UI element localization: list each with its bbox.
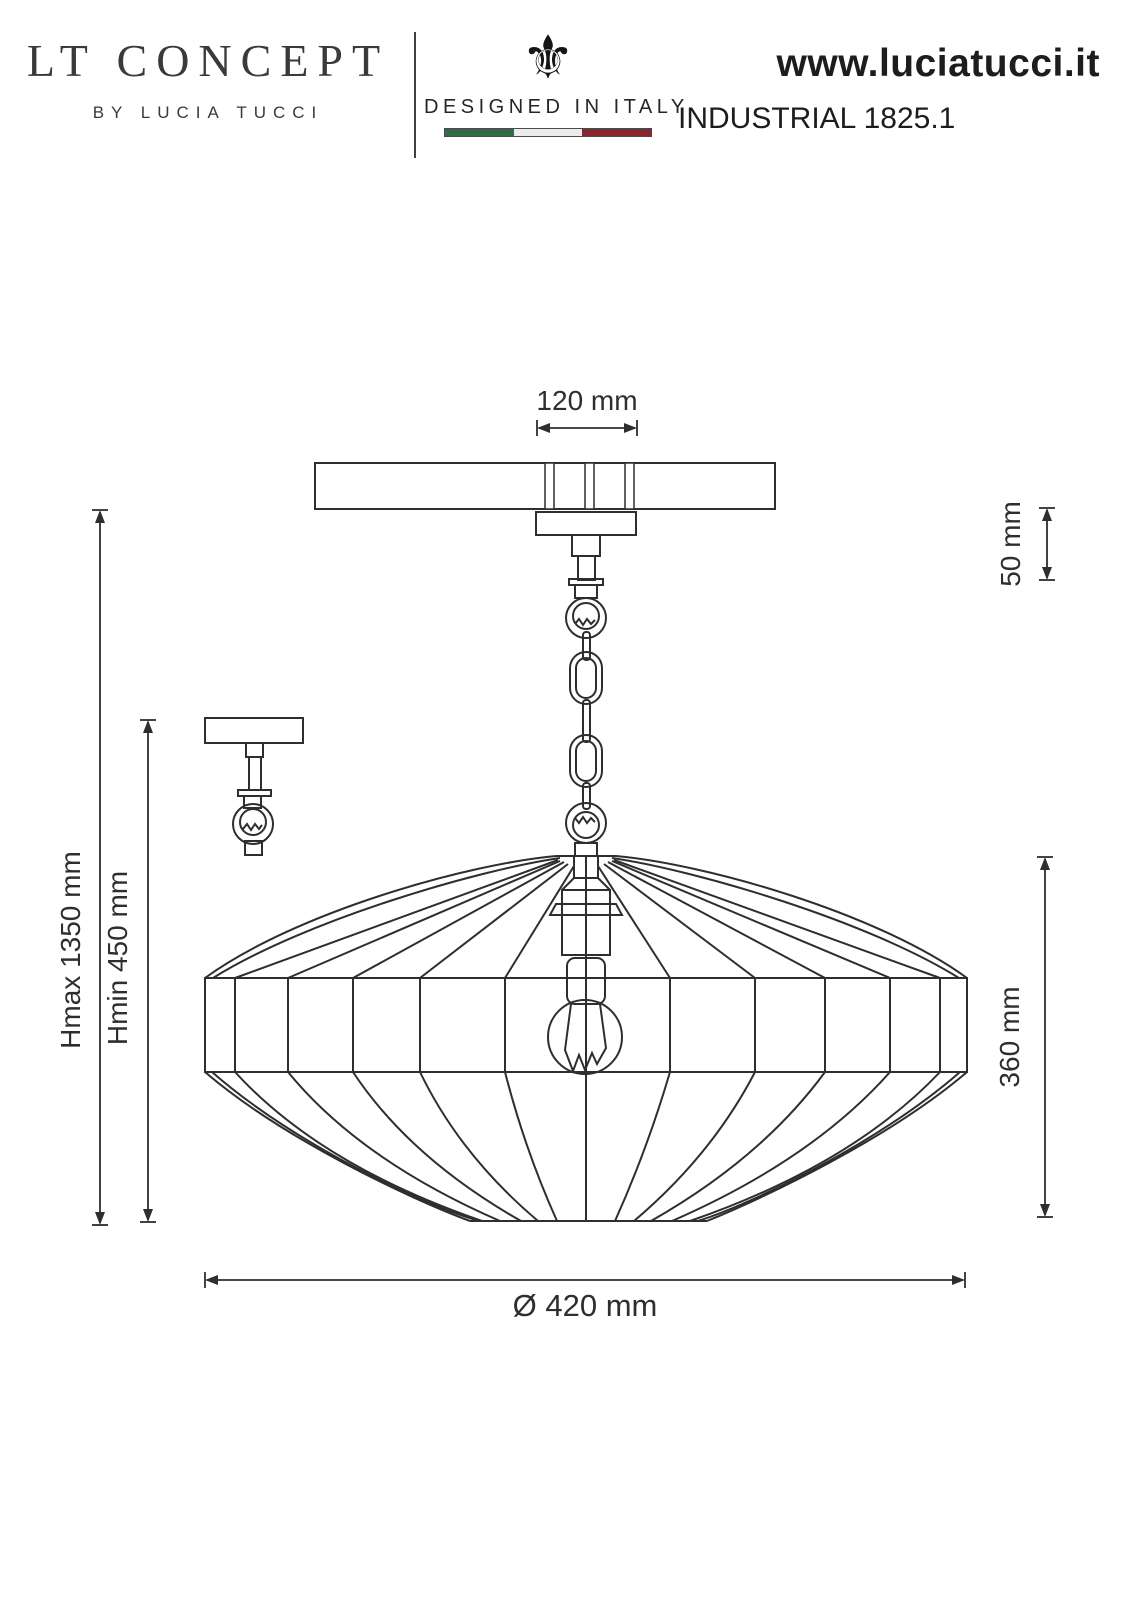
dim-label-360mm: 360 mm	[994, 986, 1025, 1087]
dim-label-diameter: Ø 420 mm	[513, 1288, 658, 1323]
ceiling-slot	[625, 463, 634, 509]
dim-shade-height: 360 mm	[994, 857, 1053, 1217]
technical-drawing: 120 mm 50 mm Hmax 1350 mm	[0, 0, 1132, 1600]
lamp-shade	[205, 856, 967, 1221]
ceiling-mount-detail	[205, 718, 303, 855]
canopy	[536, 512, 636, 535]
ceiling-section	[315, 463, 775, 509]
dim-label-50mm: 50 mm	[995, 501, 1026, 587]
dim-max-height: Hmax 1350 mm	[55, 510, 108, 1225]
dim-canopy-width: 120 mm	[536, 385, 637, 436]
dim-min-height: Hmin 450 mm	[102, 720, 156, 1222]
suspension-assembly	[536, 512, 636, 856]
dimension-annotations: 120 mm 50 mm Hmax 1350 mm	[55, 385, 1055, 1323]
dim-canopy-drop: 50 mm	[995, 501, 1055, 587]
dim-label-hmin: Hmin 450 mm	[102, 871, 133, 1045]
ceiling-slot	[545, 463, 554, 509]
dim-label-hmax: Hmax 1350 mm	[55, 851, 86, 1049]
spec-sheet-page: LT CONCEPT BY LUCIA TUCCI ⚜ DESIGNED IN …	[0, 0, 1132, 1600]
detail-canopy	[205, 718, 303, 743]
dim-shade-diameter: Ø 420 mm	[205, 1272, 965, 1323]
dim-label-120mm: 120 mm	[536, 385, 637, 416]
ceiling-slot	[585, 463, 594, 509]
